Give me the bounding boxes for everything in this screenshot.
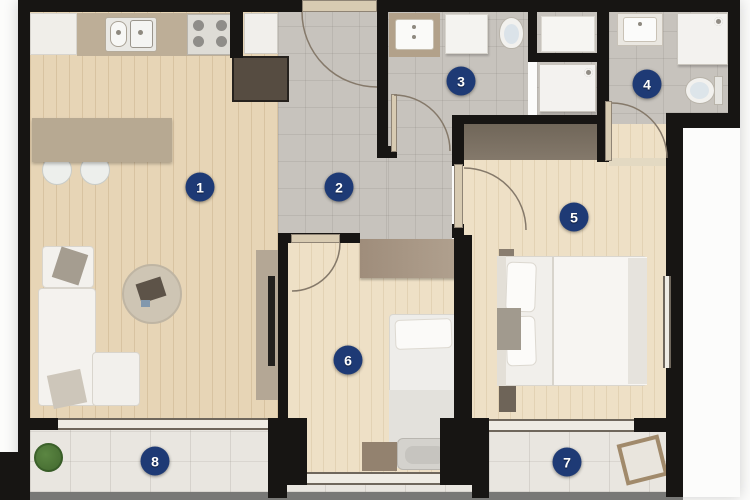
floor-plan: 12345678 [0,0,750,500]
room-badge-1: 1 [186,173,215,202]
room-badge-4: 4 [633,70,662,99]
room-badge-7: 7 [553,448,582,477]
room-badge-8: 8 [141,447,170,476]
room-badge-5: 5 [560,203,589,232]
room-badge-2: 2 [325,173,354,202]
room-badge-3: 3 [447,67,476,96]
badge-layer: 12345678 [0,0,750,500]
room-badge-6: 6 [334,346,363,375]
